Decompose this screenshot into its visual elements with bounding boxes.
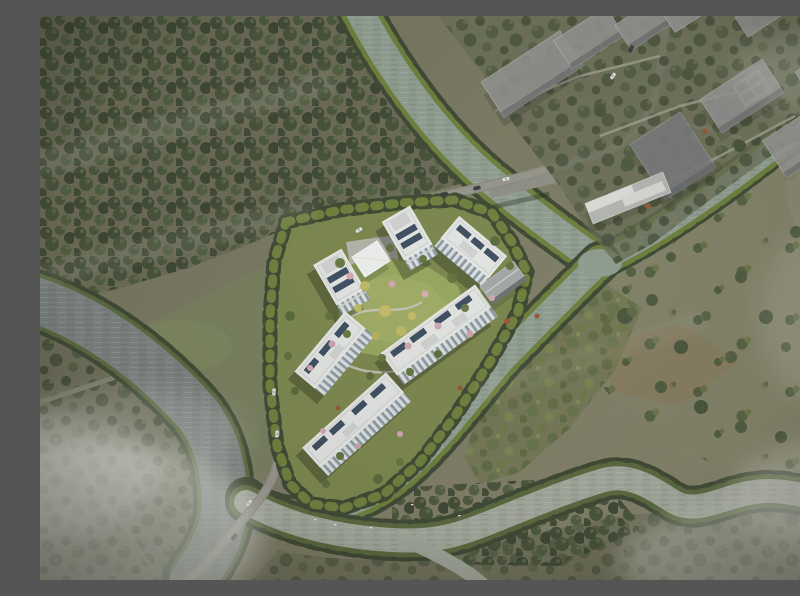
- aerial-rendering: [40, 16, 800, 580]
- color-wash: [40, 16, 800, 580]
